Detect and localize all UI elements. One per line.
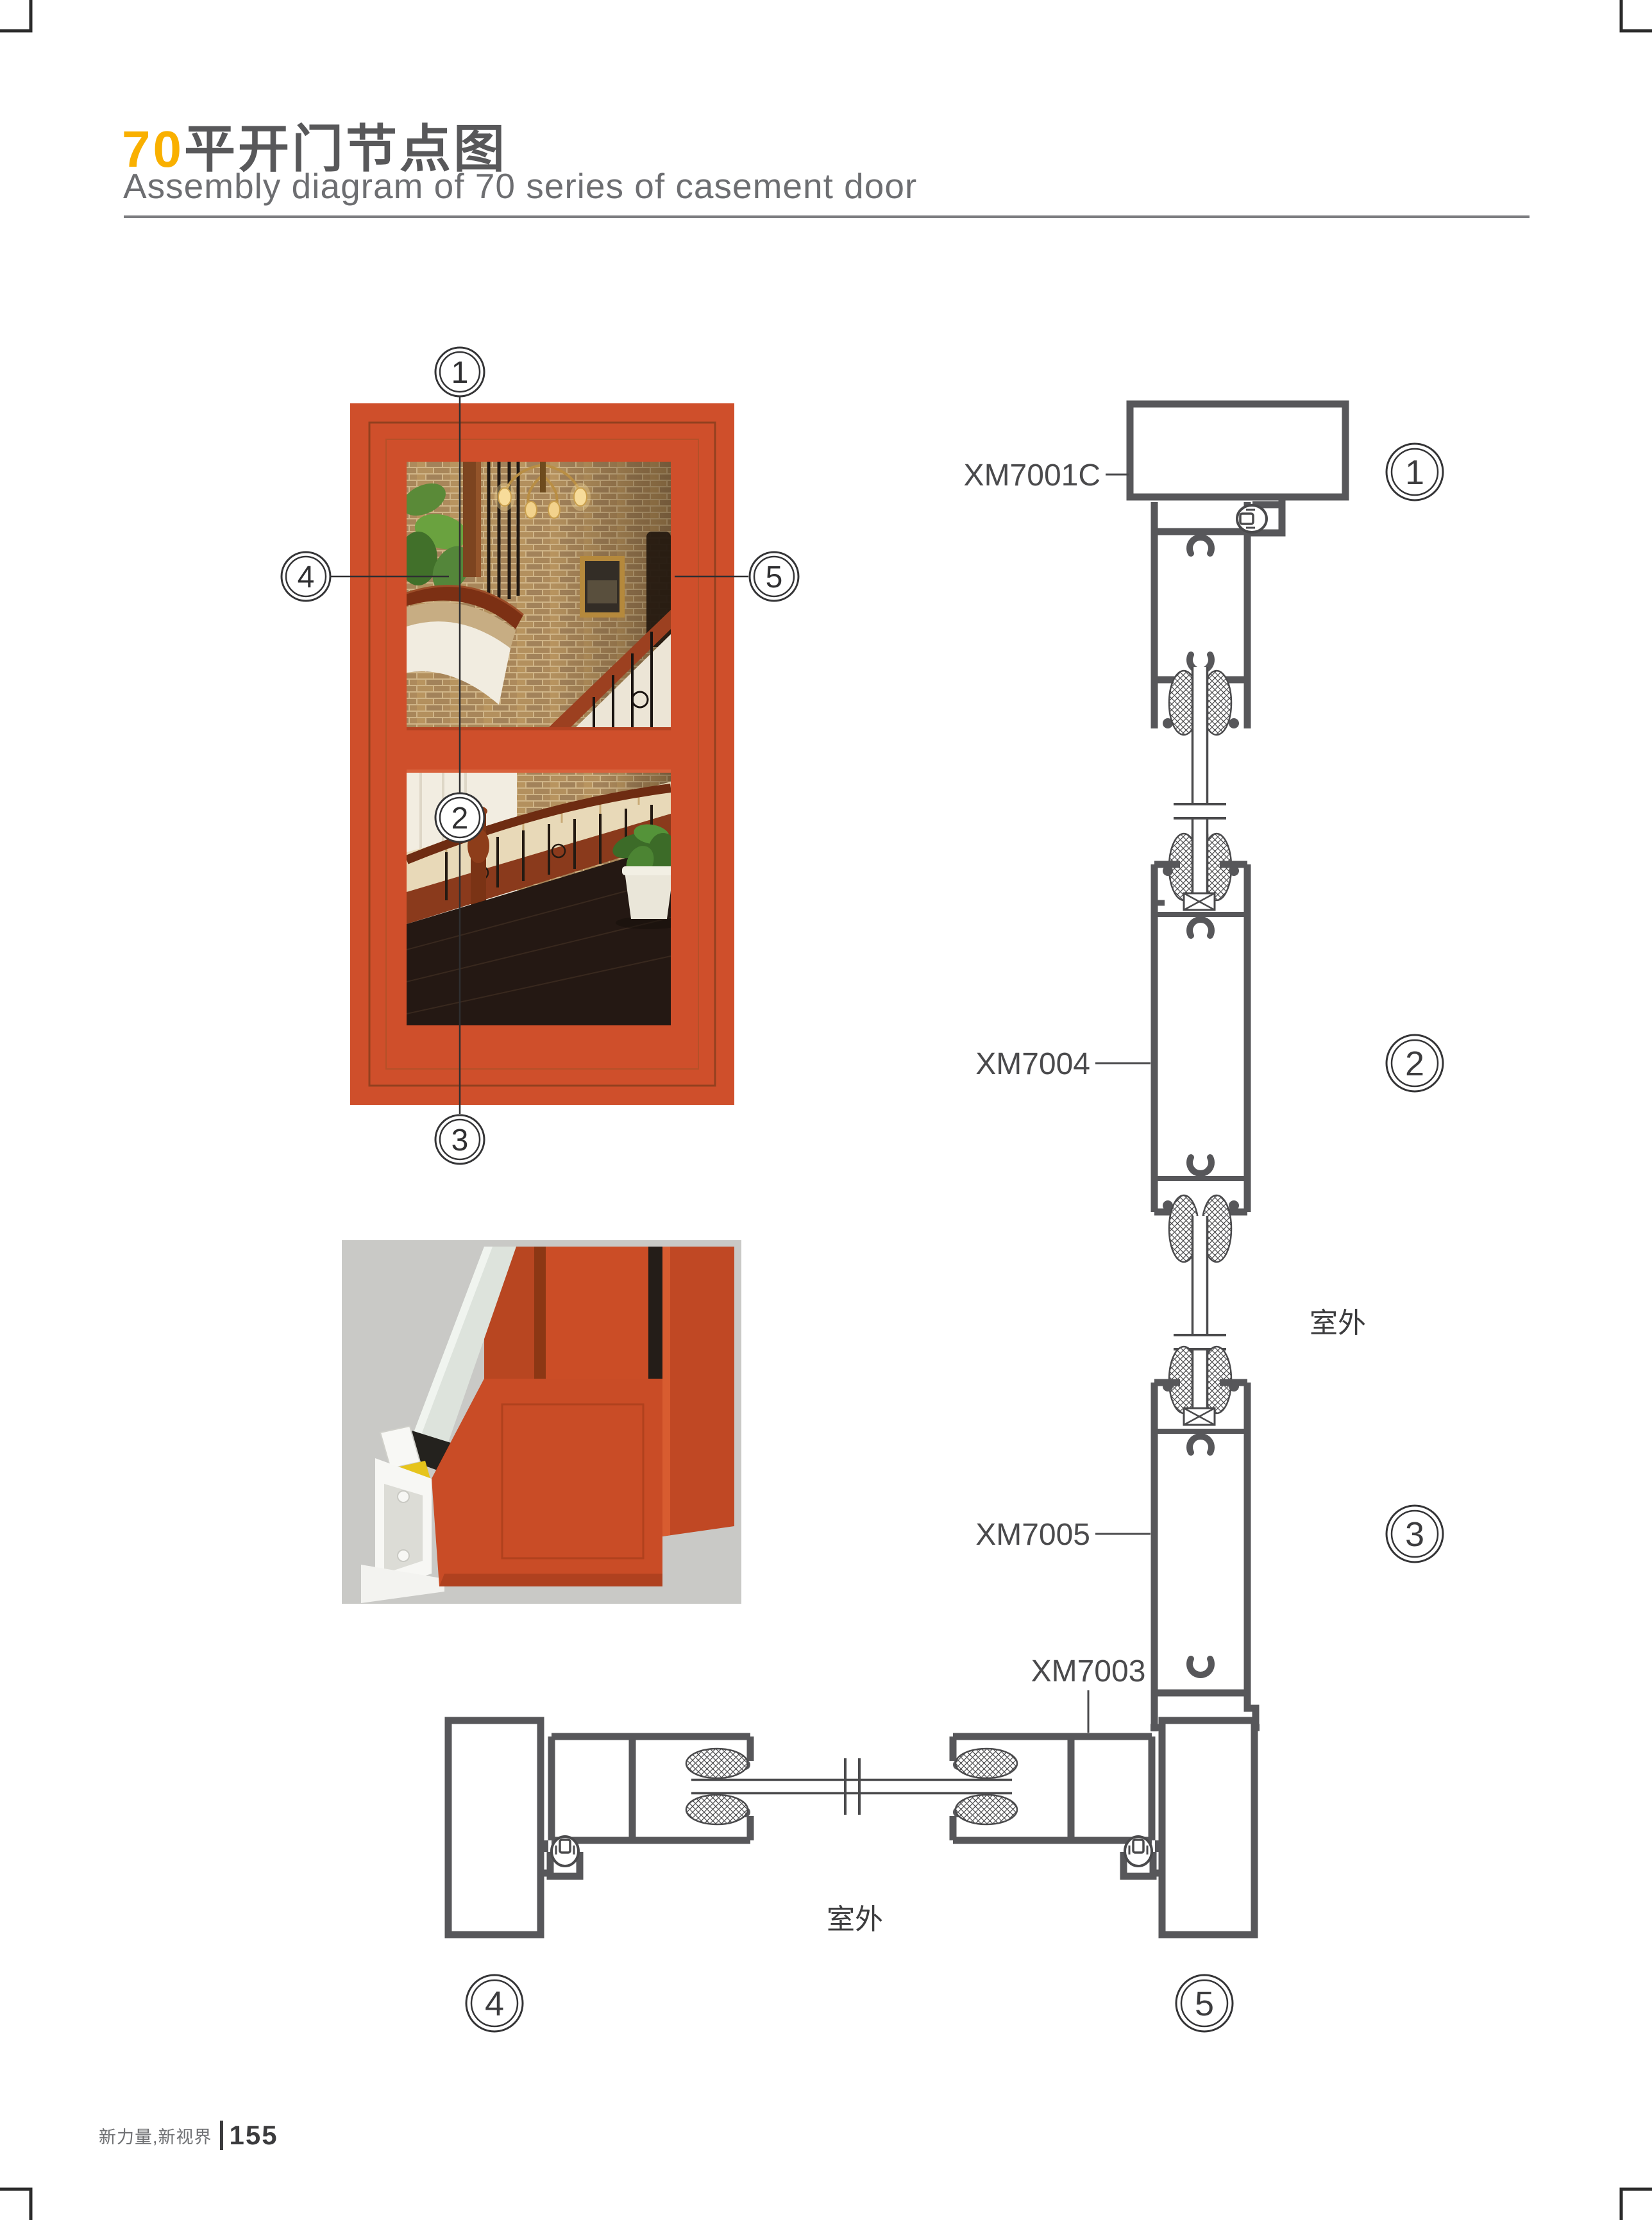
header-divider <box>124 215 1530 218</box>
screw-clip-icon <box>1190 920 1211 936</box>
callout-number: 4 <box>298 560 315 594</box>
transom-shadow <box>407 727 671 730</box>
callout-number: 3 <box>451 1123 469 1157</box>
glass-pane-line <box>1174 667 1226 855</box>
outdoor-label-right: 室外 <box>1310 1308 1366 1339</box>
vertical-section-drawing: XM7001C XM7004 XM7005 室外 1 2 3 <box>964 404 1443 1731</box>
callout-number: 4 <box>485 1985 504 2023</box>
wood-post-highlight <box>476 462 481 577</box>
gasket-foot <box>1163 718 1173 728</box>
screw-clip-icon <box>1190 537 1211 553</box>
section-2-transom <box>1154 834 1247 1408</box>
section-callout-2: 2 <box>1386 1035 1443 1091</box>
catalog-page: 70平开门节点图 Assembly diagram of 70 series o… <box>0 0 1652 2220</box>
glazing-gasket <box>956 1749 1017 1778</box>
screw-clip-icon <box>1190 1436 1211 1452</box>
setting-block-icon <box>1184 893 1215 910</box>
photo-callout-1: 1 <box>435 348 484 396</box>
crop-mark-top-right <box>1621 0 1652 31</box>
callout-number: 1 <box>451 356 469 390</box>
footer-divider <box>220 2121 223 2150</box>
screw-clip-icon <box>1190 655 1211 671</box>
setting-block-icon <box>1184 1408 1215 1425</box>
screw-clip-icon <box>1190 1157 1211 1173</box>
callout-number: 5 <box>1195 1985 1214 2023</box>
glass-break-mark <box>845 1758 859 1815</box>
page-subtitle: Assembly diagram of 70 series of casemen… <box>123 165 917 206</box>
glazing-gasket <box>1169 671 1199 735</box>
crop-mark-bottom-right <box>1621 2189 1652 2220</box>
glass-pane-line <box>691 1758 1012 1815</box>
page-footer: 新力量,新视界 155 <box>99 2120 278 2151</box>
horizontal-section-drawing: XM7003 室外 4 5 <box>448 1654 1254 2031</box>
callout-number: 5 <box>766 560 783 594</box>
section-callout-5: 5 <box>1176 1975 1233 2031</box>
glazing-gasket <box>1202 671 1231 735</box>
picture-frame <box>580 556 625 618</box>
glazing-gasket <box>1169 1347 1199 1413</box>
glass-pane-line <box>1192 1216 1208 1334</box>
left-jamb <box>448 1720 541 1935</box>
screw-clip-icon <box>1190 1659 1211 1675</box>
transom-light-edge <box>407 769 671 773</box>
page-number: 155 <box>230 2120 278 2151</box>
label-xm7004: XM7004 <box>975 1047 1090 1081</box>
outdoor-label-bottom: 室外 <box>827 1904 883 1935</box>
photo-callout-5: 5 <box>750 552 798 601</box>
lock-roller-icon <box>1237 505 1267 532</box>
jamb-tab <box>1155 1840 1163 1852</box>
section-3-bottom-rail <box>1150 1347 1260 1731</box>
lock-roller-icon <box>1125 1837 1152 1866</box>
section-callout-4: 4 <box>466 1975 523 2031</box>
glass-pane-line <box>1192 1350 1208 1408</box>
callout-number: 2 <box>1405 1045 1424 1083</box>
label-leader-lines <box>1095 475 1150 1534</box>
section-1-head-frame <box>1130 404 1345 728</box>
glazing-gasket <box>1169 1195 1199 1262</box>
callout-number: 1 <box>1405 453 1424 492</box>
profile-3d-render <box>342 1240 741 1604</box>
glazing-gasket <box>956 1795 1017 1824</box>
assembly-diagram: XM7001C XM7004 XM7005 室外 1 2 3 <box>0 0 1652 2220</box>
section-callout-1: 1 <box>1386 444 1443 500</box>
upper-glass-scene <box>397 462 671 727</box>
crop-mark-top-left <box>0 0 31 31</box>
glass-pane-line <box>1192 1350 1208 1408</box>
label-xm7003: XM7003 <box>1031 1654 1146 1688</box>
glazing-gasket <box>1202 1195 1231 1262</box>
crop-mark-bottom-left <box>0 2189 31 2220</box>
lock-roller-icon <box>552 1837 578 1866</box>
photo-callout-4: 4 <box>282 552 330 601</box>
glazing-gasket <box>686 1795 748 1824</box>
glazing-gasket <box>1202 834 1231 900</box>
glazing-gasket <box>686 1749 748 1778</box>
wood-post <box>463 462 476 577</box>
photo-callout-3: 3 <box>435 1115 484 1164</box>
door-photo <box>350 403 734 1105</box>
footer-slogan: 新力量,新视界 <box>99 2123 212 2148</box>
glass-break-mark <box>1174 1335 1226 1349</box>
glazing-gasket <box>1202 1347 1231 1413</box>
lower-glass-scene <box>407 773 682 1025</box>
label-xm7001c: XM7001C <box>964 458 1100 492</box>
gasket-foot <box>1229 718 1239 728</box>
glass-pane-line <box>1192 834 1208 895</box>
jamb-tab <box>541 1840 548 1852</box>
crop-marks <box>0 0 1652 2220</box>
glass-pane-line <box>1193 834 1208 895</box>
section-callout-3: 3 <box>1386 1506 1443 1562</box>
right-jamb <box>1162 1720 1254 1935</box>
glazing-gasket <box>1169 834 1199 900</box>
callout-number: 3 <box>1405 1515 1424 1554</box>
label-xm7005: XM7005 <box>975 1518 1090 1552</box>
